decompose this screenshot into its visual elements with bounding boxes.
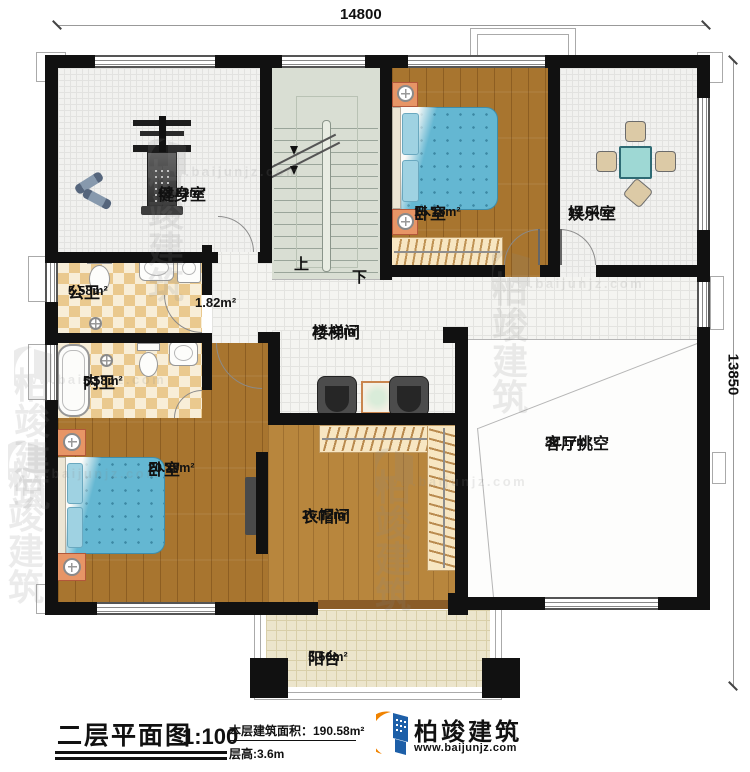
dimension-width-label: 14800 bbox=[340, 6, 382, 23]
armchair-seat bbox=[325, 386, 349, 412]
window bbox=[45, 258, 58, 302]
pillar bbox=[250, 658, 288, 698]
pillow bbox=[402, 160, 419, 202]
window bbox=[45, 345, 58, 400]
room-area: 5.58m² bbox=[83, 374, 123, 389]
hanger-rack-right-rail bbox=[443, 428, 445, 568]
wall bbox=[215, 602, 318, 615]
washer-drum bbox=[182, 261, 196, 275]
room-area: 39.17m² bbox=[545, 435, 592, 450]
wall bbox=[45, 400, 58, 615]
wall bbox=[258, 252, 272, 263]
hanger-rack-top-rail bbox=[322, 438, 430, 440]
floor-height-text: 层高:3.6m bbox=[229, 745, 284, 762]
room-area: 14.64m² bbox=[568, 205, 615, 220]
stair-arrow bbox=[290, 146, 298, 155]
wall bbox=[658, 597, 710, 610]
title-underline bbox=[55, 751, 227, 754]
chair bbox=[625, 121, 646, 142]
wall bbox=[697, 327, 710, 610]
wall bbox=[45, 333, 212, 343]
sill-box bbox=[710, 276, 724, 330]
room-area: 5.50m² bbox=[308, 650, 348, 665]
pillow bbox=[67, 507, 83, 548]
sill-box bbox=[28, 344, 46, 400]
wall bbox=[380, 55, 392, 280]
balcony-threshold bbox=[318, 600, 448, 609]
stair-up-label: 上 bbox=[294, 253, 309, 274]
room-area: 5.58m² bbox=[68, 284, 108, 299]
wall bbox=[202, 343, 212, 390]
pillar bbox=[482, 658, 520, 698]
chair bbox=[655, 151, 676, 172]
living-void-floor bbox=[463, 339, 697, 597]
lamp bbox=[63, 558, 81, 576]
plan-title: 二层平面图 bbox=[57, 716, 192, 752]
wall bbox=[545, 55, 710, 68]
wall bbox=[443, 327, 468, 343]
bay-window-outline bbox=[477, 34, 569, 57]
floor-area-text: 本层建筑面积：190.58m² bbox=[229, 722, 364, 739]
wall bbox=[268, 413, 460, 425]
balcony-floor bbox=[266, 610, 490, 687]
window bbox=[545, 597, 658, 610]
wall bbox=[455, 327, 468, 607]
wall bbox=[455, 597, 545, 610]
window bbox=[282, 55, 365, 68]
weight-machine-stem bbox=[159, 116, 166, 154]
armchair-seat bbox=[397, 386, 421, 412]
chair bbox=[596, 151, 617, 172]
headboard bbox=[57, 457, 66, 554]
wall bbox=[45, 602, 97, 615]
toilet-tank bbox=[137, 343, 160, 351]
wall bbox=[260, 55, 272, 252]
room-area: 16.72m² bbox=[302, 508, 349, 523]
room-area: 18.82m² bbox=[158, 186, 205, 201]
window bbox=[408, 55, 545, 68]
info-divider bbox=[228, 740, 356, 741]
room-area: 1.82m² bbox=[195, 295, 236, 311]
door-leaf bbox=[560, 229, 562, 265]
floor-drain bbox=[89, 317, 102, 330]
wall bbox=[45, 252, 218, 263]
pillow bbox=[67, 463, 83, 504]
brand-url: www.baijunjz.com bbox=[414, 742, 517, 754]
lamp bbox=[397, 213, 414, 230]
wall bbox=[697, 55, 710, 98]
headboard bbox=[392, 107, 401, 209]
table bbox=[619, 146, 652, 179]
wall bbox=[256, 452, 268, 554]
dimension-height-label: 13850 bbox=[725, 345, 742, 405]
toilet-bowl bbox=[139, 352, 158, 377]
floor-plan: 柏竣建筑www.baijunjz.com 柏竣建筑www.baijunjz.co… bbox=[0, 0, 750, 772]
window bbox=[97, 602, 215, 615]
door-leaf bbox=[538, 229, 540, 265]
stair-down-label: 下 bbox=[352, 266, 367, 287]
window bbox=[95, 55, 215, 68]
wall bbox=[45, 55, 58, 258]
stair-stringer bbox=[322, 120, 331, 272]
lamp bbox=[397, 85, 414, 102]
pillow bbox=[402, 113, 419, 155]
stair-arrow bbox=[290, 166, 298, 175]
title-underline bbox=[55, 757, 227, 760]
room-area: 25.45m² bbox=[312, 324, 359, 339]
weight-machine-base bbox=[141, 206, 183, 215]
wall bbox=[392, 265, 505, 277]
wall bbox=[548, 55, 560, 277]
wall bbox=[596, 265, 710, 277]
wall bbox=[540, 265, 560, 277]
void-edge-line bbox=[463, 339, 697, 340]
sink-basin bbox=[174, 345, 193, 361]
sill-box bbox=[28, 256, 46, 302]
lamp bbox=[63, 433, 81, 451]
room-area: 20.39m² bbox=[148, 461, 195, 476]
window bbox=[697, 282, 710, 327]
sill-box bbox=[712, 452, 726, 484]
brand-logo-icon bbox=[376, 707, 412, 759]
closet-rail bbox=[394, 251, 500, 253]
dimension-line-top bbox=[57, 25, 707, 26]
bathtub-basin bbox=[62, 350, 85, 411]
floor-drain bbox=[100, 354, 113, 367]
wall bbox=[202, 245, 212, 295]
wall bbox=[268, 332, 280, 418]
window bbox=[697, 98, 710, 230]
room-area: 15.15m² bbox=[414, 205, 461, 220]
